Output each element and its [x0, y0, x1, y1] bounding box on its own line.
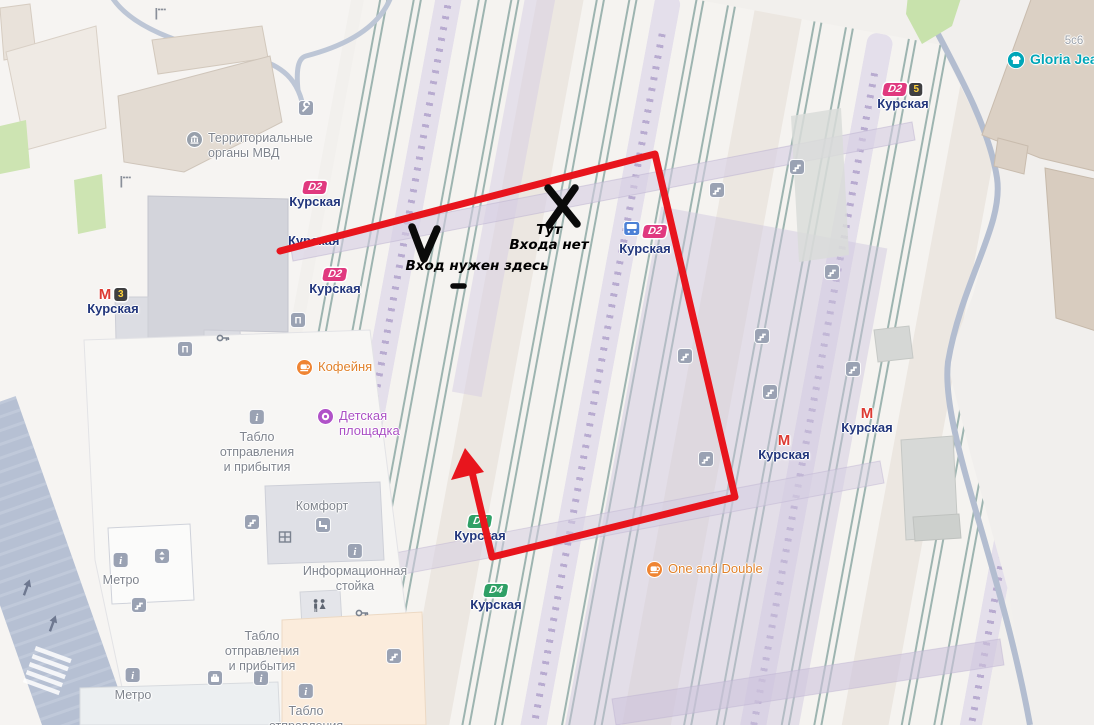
label-text: Курская [877, 97, 929, 111]
info-icon: i [113, 555, 129, 572]
label-text: Метро [115, 688, 152, 703]
poi-gloria-jeans[interactable]: Gloria Jeans [1007, 51, 1094, 74]
label-metro-2: iМетро [115, 667, 152, 703]
station-d4-kurskaya-n[interactable]: D4Курская [454, 515, 506, 543]
info-icon: i [347, 546, 363, 563]
label-text: стойка [303, 579, 407, 594]
info-icon: i [249, 412, 265, 429]
d2-line-badge: D2 [882, 83, 908, 96]
label-text: Курская [309, 282, 361, 296]
label-text: органы МВД [208, 146, 313, 161]
station-m-kurskaya-s[interactable]: МКурская [758, 434, 810, 462]
cup-icon [646, 561, 663, 583]
label-text: 5с6 [1065, 35, 1084, 47]
label-tablo-3: iТаблоотправления [269, 683, 343, 725]
label-text: отправления [220, 445, 294, 460]
label-text: Курская [87, 302, 139, 316]
d2-line-badge: D2 [322, 268, 348, 281]
playground-icon [317, 408, 334, 430]
poi-one-and-double[interactable]: One and Double [646, 561, 763, 583]
label-mvd: Территориальныеорганы МВД [186, 131, 313, 161]
label-tablo-1: iТаблоотправленияи прибытия [220, 409, 294, 475]
d2-line-badge: D2 [642, 225, 668, 238]
label-text: отправления [225, 644, 299, 659]
label-text: Курская [289, 195, 341, 209]
label-text: отправления [269, 719, 343, 725]
label-text: Табло [220, 430, 294, 445]
annotation-entrance-needed: Вход нужен здесь [405, 259, 548, 274]
exit-number-badge: 3 [114, 288, 127, 301]
d4-line-badge: D4 [467, 515, 493, 528]
tshirt-icon [1007, 51, 1025, 74]
government-icon [186, 131, 203, 153]
info-icon: i [125, 670, 141, 687]
label-text: Входа нет [509, 238, 588, 253]
label-text: Табло [269, 704, 343, 719]
label-text: Детская [339, 408, 400, 423]
label-info-desk: iИнформационнаястойка [303, 543, 407, 594]
metro-m-icon: М [99, 288, 112, 301]
exit-number-badge: 5 [910, 83, 923, 96]
poi-coffee[interactable]: Кофейня [296, 359, 372, 381]
label-text: Курская [758, 448, 810, 462]
poi-playground[interactable]: Детскаяплощадка [317, 408, 400, 438]
metro-m-icon: М [861, 407, 874, 420]
label-text: Курская [841, 421, 893, 435]
label-text: Комфорт [296, 499, 348, 514]
station-m3-kurskaya[interactable]: М3Курская [87, 288, 139, 316]
station-d2-kurskaya-w[interactable]: D2Курская [309, 268, 361, 296]
label-text: Вход нужен здесь [405, 259, 548, 274]
label-text: Курская [470, 598, 522, 612]
label-text: площадка [339, 423, 400, 438]
station-d2-kurskaya-nw[interactable]: D2Курская [289, 181, 341, 209]
label-text: Курская [288, 234, 340, 248]
d2-line-badge: D2 [302, 181, 328, 194]
info-icon: i [298, 686, 314, 703]
label-text: Gloria Jeans [1030, 51, 1094, 67]
label-text: Курская [619, 242, 671, 256]
station-d4-kurskaya-s[interactable]: D4Курская [470, 584, 522, 612]
label-text: и прибытия [220, 460, 294, 475]
label-text: Метро [103, 573, 140, 588]
label-komfort: Комфорт [296, 499, 348, 514]
cup-icon [296, 359, 313, 381]
label-text: Курская [454, 529, 506, 543]
label-text: Территориальные [208, 131, 313, 146]
label-5s6: 5с6 [1065, 35, 1084, 47]
label-text: One and Double [668, 561, 763, 576]
label-text: Кофейня [318, 359, 372, 374]
train-icon [623, 221, 640, 241]
station-m-kurskaya-e[interactable]: МКурская [841, 407, 893, 435]
label-text: и прибытия [225, 659, 299, 674]
metro-m-icon: М [778, 434, 791, 447]
label-metro-1: iМетро [103, 552, 140, 588]
label-text: Информационная [303, 564, 407, 579]
annotation-entrance-no: ТутВхода нет [509, 223, 588, 253]
d4-line-badge: D4 [483, 584, 509, 597]
station-rail-d2-kurskaya[interactable]: D2Курская [619, 221, 671, 256]
label-text: Тут [509, 223, 588, 238]
label-tablo-2: Таблоотправленияи прибытия [225, 629, 299, 674]
station-d2-5-kurskaya-ne[interactable]: D25Курская [877, 83, 929, 111]
map-canvas[interactable]: ППi Территориальныеорганы МВДD2КурскаяКу… [0, 0, 1094, 725]
station-m-kurskaya-crossed[interactable]: Курская [283, 234, 340, 248]
label-text: Табло [225, 629, 299, 644]
